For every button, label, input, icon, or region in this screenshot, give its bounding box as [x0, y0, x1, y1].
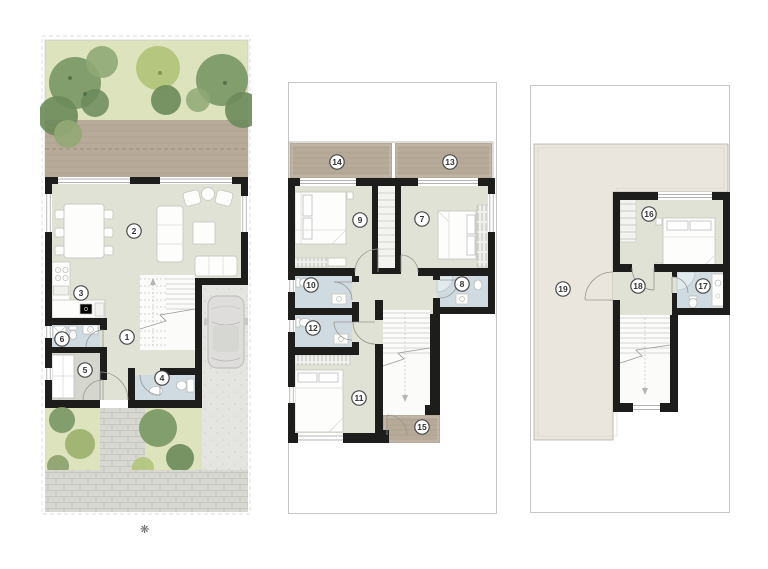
floorplan-sheet: 2 3 1 6 5 4 [0, 0, 768, 569]
svg-text:15: 15 [417, 422, 427, 432]
room-marker-13: 13 [443, 155, 457, 169]
bed-16 [656, 218, 715, 270]
svg-text:8: 8 [460, 279, 465, 289]
oven [54, 286, 69, 295]
svg-text:5: 5 [83, 365, 88, 375]
room-marker-10: 10 [304, 278, 318, 292]
room-marker-5: 5 [78, 363, 92, 377]
room-marker-15: 15 [415, 420, 429, 434]
plan-ground-floor: 2 3 1 6 5 4 [40, 28, 252, 518]
svg-text:2: 2 [132, 226, 137, 236]
wardrobe [295, 355, 350, 365]
coffee-table [193, 222, 215, 244]
appliance [95, 303, 104, 316]
svg-text:3: 3 [79, 288, 84, 298]
utility-fixtures [52, 355, 74, 398]
stairs [383, 310, 430, 415]
room-marker-19: 19 [556, 282, 570, 296]
rear-terrace-15 [383, 415, 440, 443]
room-marker-17: 17 [696, 279, 710, 293]
car [204, 296, 248, 368]
room-marker-7: 7 [415, 212, 429, 226]
bed-7 [438, 211, 476, 259]
svg-text:7: 7 [420, 214, 425, 224]
svg-text:11: 11 [355, 393, 364, 403]
bed-9 [295, 192, 353, 244]
room-marker-3: 3 [74, 286, 88, 300]
closet [620, 198, 636, 242]
front-garden [45, 407, 202, 479]
closet [378, 186, 395, 268]
room-marker-14: 14 [330, 155, 344, 169]
bench [328, 258, 346, 266]
room-marker-18: 18 [631, 279, 645, 293]
svg-text:16: 16 [644, 209, 654, 219]
room-marker-1: 1 [120, 330, 134, 344]
wardrobe [477, 205, 488, 267]
svg-text:18: 18 [633, 281, 643, 291]
plan-second-floor: 19 16 18 17 [530, 85, 730, 513]
svg-text:12: 12 [308, 323, 318, 333]
car-mirror [244, 318, 248, 325]
room-marker-16: 16 [642, 207, 656, 221]
car-mirror [204, 318, 208, 325]
dining-table [55, 204, 113, 258]
room-marker-12: 12 [306, 321, 320, 335]
room-marker-11: 11 [352, 391, 366, 405]
svg-text:10: 10 [306, 280, 316, 290]
kitchen-sink [80, 304, 92, 314]
bed-11 [295, 370, 343, 432]
street-paving [45, 470, 248, 512]
wardrobe [290, 258, 328, 267]
svg-text:17: 17 [698, 281, 708, 291]
svg-text:1: 1 [125, 332, 130, 342]
svg-text:6: 6 [60, 334, 65, 344]
room-marker-8: 8 [455, 277, 469, 291]
side-table [202, 188, 215, 201]
svg-text:4: 4 [160, 373, 165, 383]
svg-text:13: 13 [445, 157, 455, 167]
room-marker-4: 4 [155, 371, 169, 385]
room-marker-9: 9 [353, 213, 367, 227]
svg-text:19: 19 [558, 284, 568, 294]
stairs [140, 275, 195, 350]
svg-text:9: 9 [358, 215, 363, 225]
room-marker-6: 6 [55, 332, 69, 346]
room-marker-2: 2 [127, 224, 141, 238]
sun-icon: ❋ [140, 523, 149, 536]
plan-first-floor: 14 13 9 7 10 8 12 11 15 [288, 82, 497, 515]
svg-text:14: 14 [332, 157, 342, 167]
